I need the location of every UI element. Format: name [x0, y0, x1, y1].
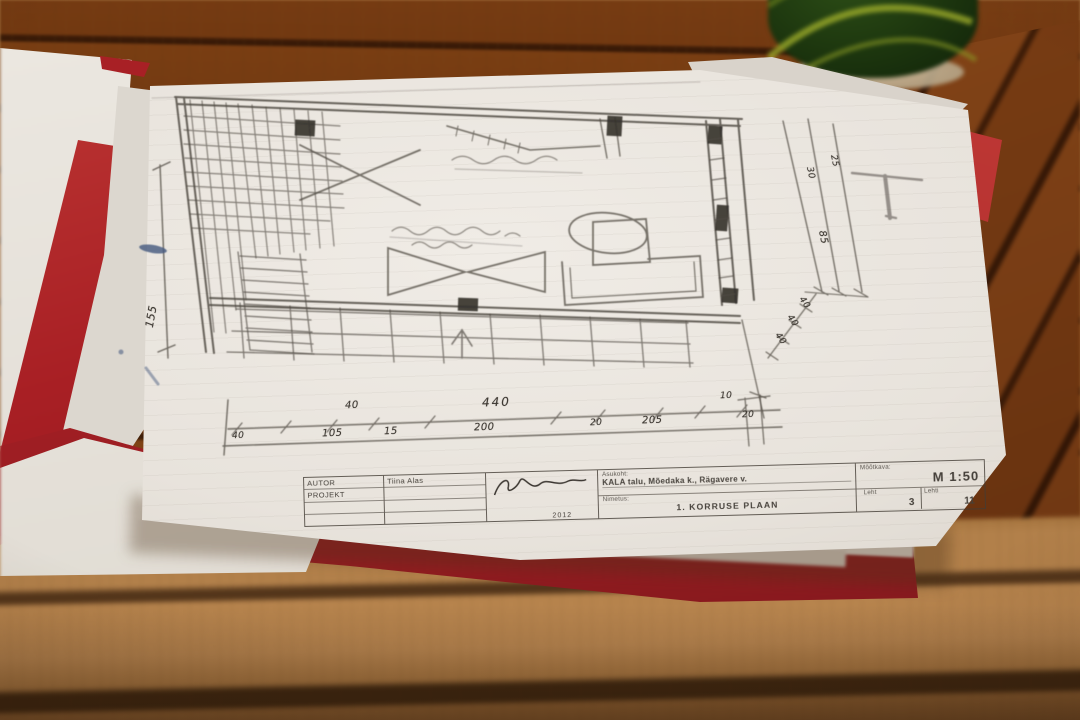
- dark-wall-posts: [295, 116, 739, 312]
- photo-blueprints-on-table: 155 40 440 10 40 105 15 200 20 205 20 25…: [0, 0, 1080, 720]
- dim-label: 105: [322, 428, 343, 440]
- scale-cell: Mõõtkava: M 1:50: [856, 460, 985, 489]
- floor-plan-drawing: [0, 0, 1080, 720]
- dim-label: 200: [474, 422, 495, 434]
- lehti-label: Lehti: [924, 486, 978, 494]
- lehti-cell: Lehti 11: [920, 486, 981, 509]
- outer-walls: [152, 82, 754, 353]
- dim-label: 40: [232, 431, 245, 441]
- dim-label: 20: [590, 418, 603, 428]
- signature: [490, 472, 591, 501]
- north-t-symbol: [852, 173, 922, 218]
- mootkava-value: M 1:50: [933, 468, 980, 484]
- leht-cell: Leht 3: [861, 488, 921, 511]
- handwritten-notes: [390, 156, 582, 248]
- empty-row: [385, 510, 486, 524]
- title-block-signature-column: 2012: [486, 470, 599, 521]
- leht-label: Leht: [864, 488, 918, 496]
- dim-label: 40: [345, 400, 359, 411]
- lehti-value: 11: [964, 495, 975, 506]
- dim-label: 10: [720, 391, 733, 401]
- dim-label: 20: [742, 410, 755, 420]
- title-block-location-column: Asukoht: KALA talu, Mõedaka k., Rägavere…: [598, 464, 857, 519]
- title-block-labels-column: AUTOR PROJEKT: [304, 476, 385, 526]
- title-block-scale-column: Mõõtkava: M 1:50 Leht 3 Lehti 11: [856, 460, 985, 511]
- staircase: [238, 252, 314, 354]
- dim-label: 205: [642, 415, 663, 427]
- plan-symbols: [300, 118, 766, 418]
- dim-label: 440: [482, 394, 511, 409]
- signature-year: 2012: [552, 512, 572, 520]
- empty-row: [305, 513, 384, 526]
- blue-pen-marks: [119, 243, 168, 384]
- title-block-name-column: Tiina Alas: [384, 473, 487, 524]
- dim-label: 15: [384, 426, 398, 437]
- leht-value: 3: [909, 497, 915, 508]
- sheet-number-cell: Leht 3 Lehti 11: [857, 486, 986, 510]
